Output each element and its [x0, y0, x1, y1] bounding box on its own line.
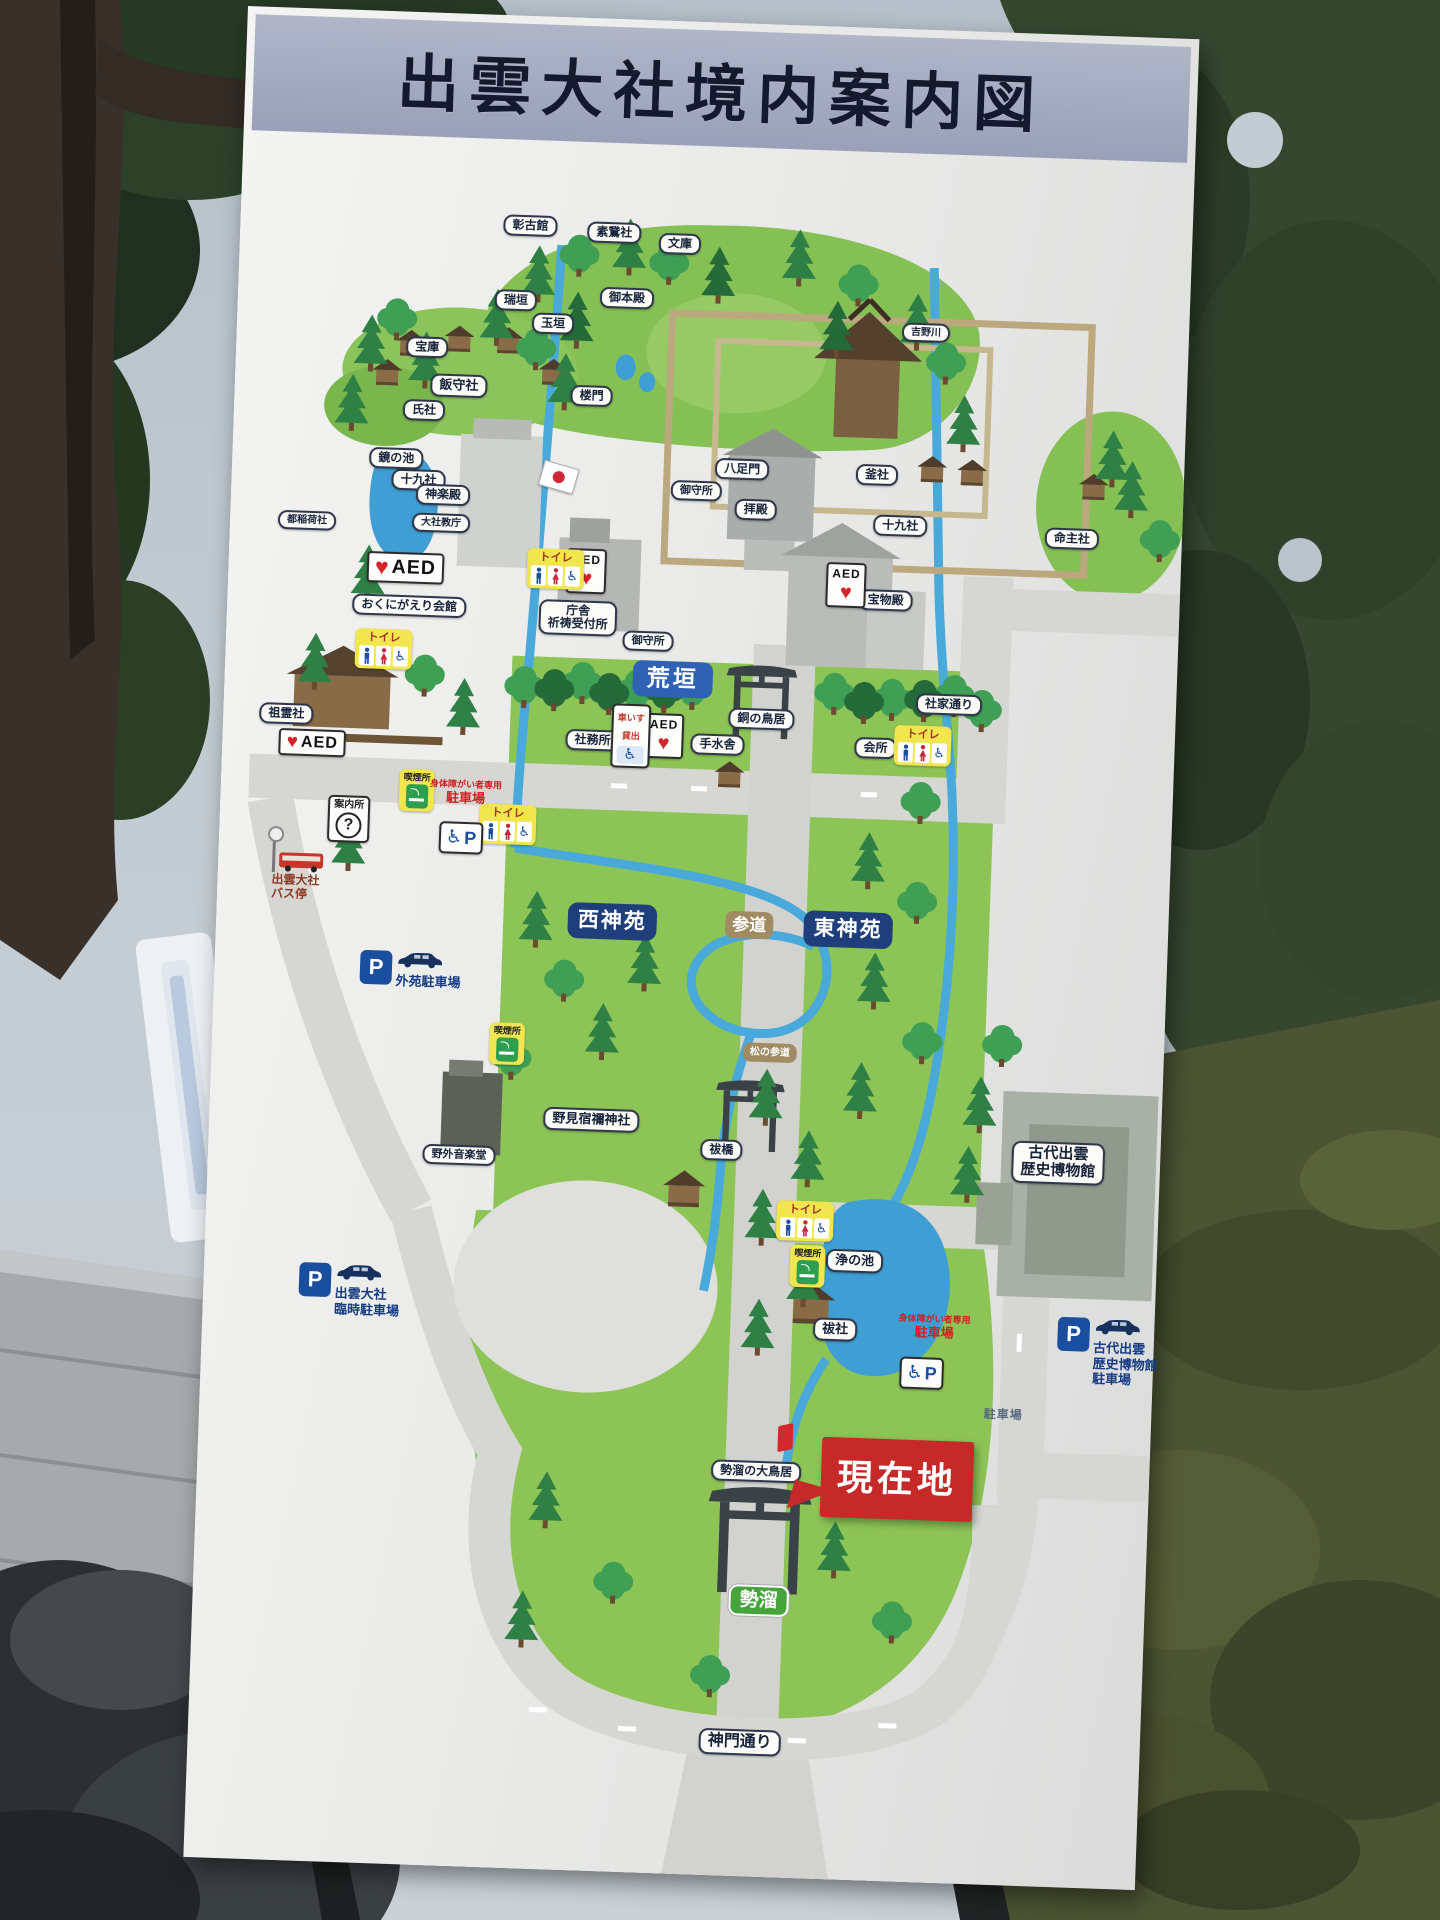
gaien-parking: P外苑駐車場 — [359, 950, 461, 991]
toilet-kaguraden: トイレ♿ — [354, 628, 412, 670]
roumon-label: 楼門 — [570, 385, 613, 408]
toilet-kaisho: トイレ♿ — [893, 725, 951, 767]
soreisha-label: 祖霊社 — [259, 702, 314, 725]
hoko-label: 宝庫 — [406, 336, 449, 359]
smoking-3: 喫煙所 — [789, 1245, 825, 1288]
genzaichi-label: 現在地 — [820, 1437, 975, 1523]
kaguraden-label: 神楽殿 — [416, 483, 471, 506]
gohonden-label: 御本殿 — [600, 287, 655, 310]
seidamari-label: 勢溜 — [728, 1584, 789, 1617]
car-icon — [1093, 1322, 1142, 1341]
tamagaki-label: 玉垣 — [532, 312, 575, 335]
genzaichi-marker — [777, 1423, 793, 1452]
aed-kaguraden: ♥AED — [367, 551, 445, 585]
kodai-izumo-museum-label: 古代出雲 歴史博物館 — [1011, 1141, 1105, 1186]
haiden-label: 拝殿 — [734, 499, 777, 522]
sando-label: 参道 — [725, 911, 774, 940]
yagai-ongakudo-label: 野外音楽堂 — [422, 1144, 496, 1167]
nominosukune-jinja-label: 野見宿禰神社 — [543, 1107, 640, 1133]
toilet-chosha: トイレ♿ — [526, 548, 584, 590]
wheelchair-rental: 車いす 貸出♿ — [610, 703, 651, 768]
bunko-label: 文庫 — [659, 233, 702, 256]
aed-homotsuden: AED♥ — [825, 562, 867, 608]
parking-p-icon: P — [1057, 1317, 1090, 1352]
disabled-parking-text-2: 身体障がい者専用駐車場 — [898, 1313, 971, 1343]
photo-of-map-signboard: { "title": "出雲大社境内案内図", "aed": "AED", "m… — [0, 0, 1440, 1920]
taishakyocho-label: 大社教庁 — [412, 512, 471, 533]
disabled-parking-sign-2: ♿P — [899, 1357, 944, 1391]
omamoridokoro-lower-label: 御守所 — [622, 630, 674, 652]
seidamari-no-otorii-label: 勢溜の大鳥居 — [711, 1459, 802, 1484]
omamoridokoro-upper-label: 御守所 — [671, 480, 723, 502]
aed-soreisha: ♥AED — [278, 728, 346, 757]
chozuya-label: 手水舎 — [690, 733, 745, 756]
parking-lot-label: 駐車場 — [984, 1408, 1023, 1423]
aragaki-label: 荒垣 — [632, 660, 713, 699]
disabled-parking-text-1: 身体障がい者専用駐車場 — [429, 778, 502, 808]
car-icon — [335, 1267, 384, 1286]
kagami-no-ike-label: 鏡の池 — [369, 447, 424, 470]
toilet-shamusho: トイレ♿ — [478, 803, 536, 845]
dou-no-torii-label: 銅の鳥居 — [728, 707, 795, 731]
jukusha-east-label: 十九社 — [873, 514, 928, 537]
mizugaki-label: 瑞垣 — [495, 289, 538, 312]
okunigaeri-kaikan-label: おくにがえり会館 — [352, 593, 466, 618]
yatsuashimon-label: 八足門 — [715, 458, 770, 481]
haraebashi-label: 祓橋 — [700, 1139, 743, 1162]
sogasha-label: 素鵞社 — [587, 221, 642, 244]
higashi-shinen-label: 東神苑 — [803, 910, 893, 949]
bus-stop: 出雲大社 バス停 — [271, 838, 325, 903]
parking-p-icon: P — [359, 950, 392, 985]
yoshinogawa-label: 吉野川 — [902, 322, 951, 343]
ujisha-label: 氏社 — [403, 399, 446, 422]
signboard: 出雲大社境内案内図 — [183, 6, 1199, 1890]
parking-p-icon: P — [299, 1262, 332, 1297]
car-icon — [396, 955, 445, 974]
miyako-inarisha-label: 都稲荷社 — [278, 510, 337, 531]
iimorisha-label: 飯守社 — [430, 373, 488, 398]
map-graphics — [183, 6, 1199, 1890]
shake-dori-label: 社家通り — [916, 693, 983, 717]
smoking-2: 喫煙所 — [489, 1022, 525, 1065]
map-title: 出雲大社境内案内図 — [396, 32, 1047, 145]
bus-stop-pole-icon — [272, 838, 276, 872]
kaisho-label: 会所 — [854, 737, 897, 760]
homotsuden-label: 宝物殿 — [858, 589, 913, 612]
shinmon-dori-label: 神門通り — [698, 1728, 781, 1757]
chosha-label: 庁舎 祈祷受付所 — [538, 599, 617, 637]
information: 案内所? — [327, 795, 371, 844]
museum-parking: P古代出雲 歴史博物館 駐車場 — [1056, 1317, 1159, 1389]
shokokan-label: 彰古館 — [503, 214, 558, 237]
kiyo-no-ike-label: 浄の池 — [826, 1249, 884, 1274]
kamasha-label: 釜社 — [856, 464, 899, 487]
matsu-no-sando-label: 松の参道 — [742, 1042, 797, 1063]
disabled-parking-sign-1: ♿P — [438, 821, 483, 855]
rinji-parking: P出雲大社 臨時駐車場 — [298, 1262, 401, 1319]
toilet-ike: トイレ♿ — [776, 1200, 834, 1242]
nishi-shinen-label: 西神苑 — [567, 902, 657, 941]
inochinushisha-label: 命主社 — [1045, 527, 1100, 550]
harae-no-yashiro-label: 祓社 — [813, 1317, 858, 1341]
